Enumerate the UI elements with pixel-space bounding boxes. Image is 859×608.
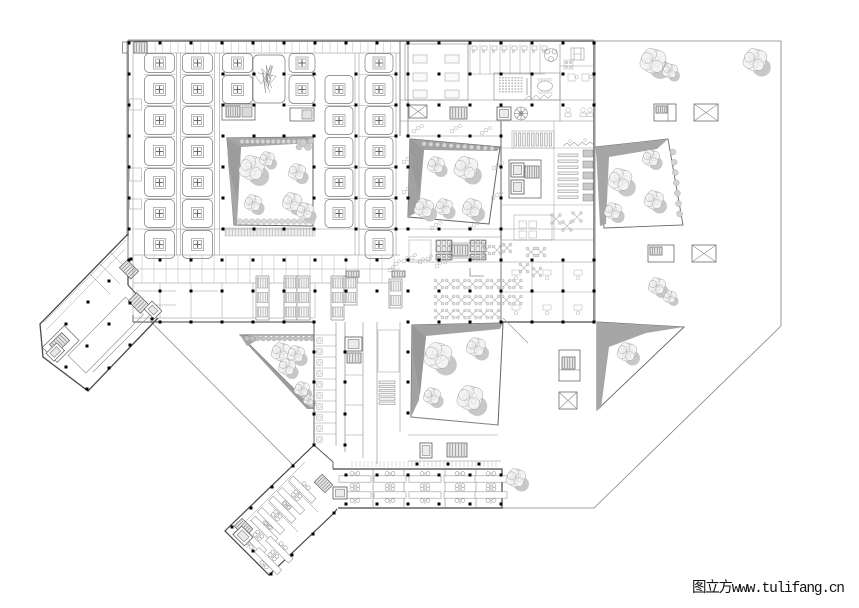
svg-text:图立方www.tulifang.cn: 图立方www.tulifang.cn	[692, 579, 845, 597]
